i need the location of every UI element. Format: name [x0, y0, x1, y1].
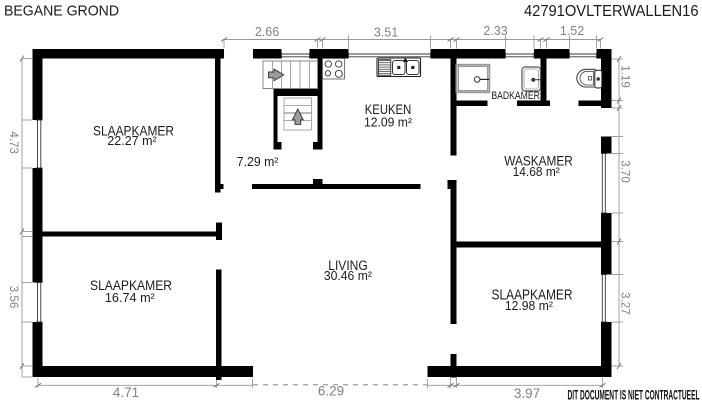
svg-text:BEGANE GROND: BEGANE GROND	[4, 4, 119, 20]
svg-text:BADKAMER: BADKAMER	[491, 90, 540, 102]
svg-text:30.46 m²: 30.46 m²	[324, 268, 373, 283]
svg-text:14.68 m²: 14.68 m²	[513, 164, 561, 179]
svg-text:4.71: 4.71	[113, 385, 139, 400]
svg-text:16.74 m²: 16.74 m²	[105, 290, 156, 305]
svg-text:4.73: 4.73	[7, 131, 20, 154]
svg-text:3.70: 3.70	[619, 160, 632, 183]
svg-text:3.97: 3.97	[514, 386, 540, 401]
svg-text:3.51: 3.51	[374, 26, 398, 40]
svg-text:2.33: 2.33	[483, 24, 507, 38]
svg-text:12.98 m²: 12.98 m²	[505, 298, 554, 313]
svg-text:22.27 m²: 22.27 m²	[107, 133, 157, 148]
svg-text:7.29 m²: 7.29 m²	[237, 154, 279, 169]
svg-text:3.27: 3.27	[619, 292, 632, 315]
svg-text:2.66: 2.66	[255, 25, 279, 39]
svg-text:1.52: 1.52	[560, 24, 584, 38]
svg-text:DIT DOCUMENT IS NIET CONTRACTU: DIT DOCUMENT IS NIET CONTRACTUEEL	[568, 388, 700, 402]
svg-text:3.56: 3.56	[7, 286, 20, 309]
svg-text:12.09 m²: 12.09 m²	[364, 115, 413, 130]
svg-text:42791OVLTERWALLEN16: 42791OVLTERWALLEN16	[524, 3, 699, 20]
svg-text:1.19: 1.19	[619, 65, 632, 88]
svg-text:6.29: 6.29	[318, 384, 344, 399]
